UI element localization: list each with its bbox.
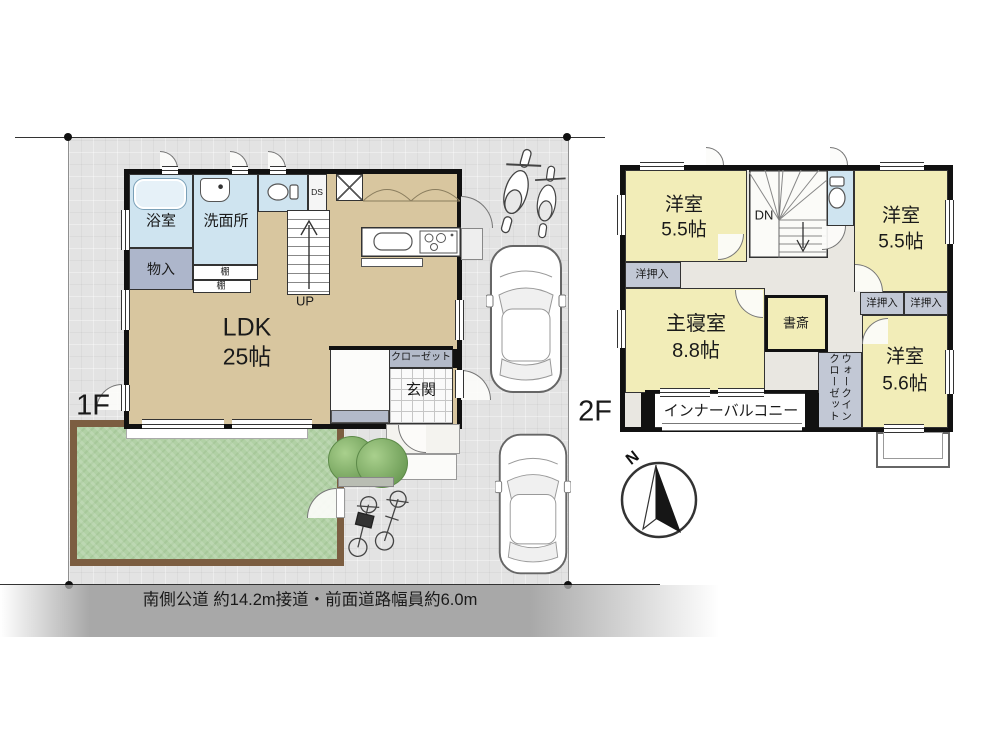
wall-hall-top [329,346,453,350]
pantry-xbox [336,174,363,201]
garden-lawn [70,420,344,566]
window-east-1 [455,300,464,340]
walk-in-closet-label: ウォークインクローゼット [828,353,852,427]
window-master-south-2 [718,388,764,397]
bathroom-label: 浴室 [146,214,176,229]
room-se-size-label: 5.6帖 [882,375,927,394]
window-south-2 [232,419,312,429]
window-2f-north-2 [880,162,924,171]
stairs-down-label: DN [755,209,774,222]
closet-e1-label: 洋押入 [866,298,898,309]
washbasin [200,178,230,202]
window-north-2 [232,166,248,175]
floor1-label: 1F [76,392,110,421]
stairs-up-label: UP [296,295,314,308]
wall-balcony-right [805,393,819,430]
floor2-label: 2F [578,398,612,427]
car-icon-2 [495,429,571,579]
casement-arc-2f-1 [706,147,724,165]
room-nw-size-label: 5.5帖 [661,221,706,240]
boundary-marker-nw [64,133,72,141]
window-west-3 [121,385,130,411]
master-size-label: 8.8帖 [672,341,720,361]
inner-balcony-label: インナーバルコニー [664,404,799,419]
room-ne-name-label: 洋室 [882,207,920,226]
duct-label: DS [311,188,323,197]
ldk-east-door-pad [461,228,483,260]
shoe-cabinet [331,410,389,423]
car-icon-1 [486,243,566,395]
window-2f-north-1 [640,162,684,171]
window-south-1 [142,419,224,429]
boundary-marker-ne [563,133,571,141]
window-north-1 [162,166,178,175]
exterior-balcony-inner [883,432,943,459]
master-name-label: 主寝室 [666,314,726,334]
road-note: 南側公道 約14.2m接道・前面道路幅員約6.0m [143,592,478,609]
bathtub [134,179,186,209]
garden-gate-opening [336,488,345,518]
toilet-icon-1f [266,180,300,204]
kitchen-counter-lower [361,258,423,267]
closet-1f-label: クローゼット [391,353,451,363]
balcony-open-edge [662,423,802,431]
wall-closet-end [453,349,462,368]
window-2f-west-2 [617,310,626,348]
casement-arc-2f-2 [830,147,848,165]
floorplan-canvas: 南側公道 約14.2m接道・前面道路幅員約6.0m [0,0,999,750]
window-2f-east-2 [945,350,954,394]
shelf-top-label: 棚 [220,268,229,277]
window-2f-east-1 [945,200,954,244]
window-west-2 [121,290,130,330]
ldk-name-label: LDK [223,316,272,341]
window-2f-west-1 [617,195,626,235]
room-nw-name-label: 洋室 [665,196,703,215]
window-west-1 [121,210,130,250]
shelf-bottom-label: 棚 [216,282,225,291]
compass-needle-light [643,465,656,529]
kitchen-counter [361,227,461,257]
compass-north-label: N [623,448,643,469]
stairs-up-1f [287,210,330,295]
closet-w-label: 洋押入 [636,270,669,281]
storage-label: 物入 [147,262,175,276]
room-ne-size-label: 5.5帖 [878,233,923,252]
ldk-size-label: 25帖 [223,346,272,369]
study-label: 書斎 [783,317,809,330]
closet-e2-label: 洋押入 [910,298,942,309]
room-se-name-label: 洋室 [886,348,924,367]
window-north-3 [270,166,286,175]
toilet-icon-2f [826,176,848,212]
washroom-label: 洗面所 [203,214,248,229]
front-door-opening [455,370,464,398]
cupboard-doors [363,174,460,202]
wall-balcony-left [641,393,655,430]
compass: N [612,443,704,543]
genkan-label: 玄関 [406,383,436,398]
boundary-line-north [15,137,605,138]
window-master-south-1 [660,388,710,397]
window-2f-south-se [884,424,924,433]
compass-needle-dark [656,465,681,533]
